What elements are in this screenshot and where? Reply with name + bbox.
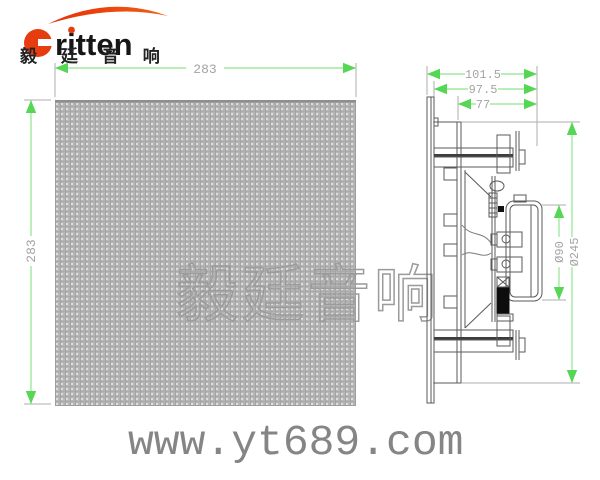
cad-linework: 283 283 101.5 97.5 77 Ø90 Ø245 [0, 0, 600, 480]
depth-inner-dimension: 77 [476, 98, 490, 112]
depth-body-dimension: 97.5 [469, 83, 498, 97]
magnet-assembly [506, 195, 542, 301]
top-mounting-clamp [434, 131, 525, 173]
side-section-view [427, 97, 542, 403]
crossover-parts [497, 277, 513, 321]
magnet-diameter-dimension: Ø90 [553, 241, 567, 263]
front-height-dimension: 283 [24, 239, 39, 262]
front-view-dimensions [31, 68, 356, 404]
website-text: www.yt689.com [128, 419, 463, 466]
cutout-diameter-dimension: Ø245 [568, 238, 582, 267]
depth-overall-dimension: 101.5 [465, 68, 501, 82]
technical-drawing-sheet: ritten 毅 廷 音 响 毅廷音响 [0, 0, 600, 480]
front-width-dimension: 283 [193, 62, 216, 77]
bottom-mounting-clamp [434, 316, 525, 360]
side-view-dimensions [427, 74, 572, 383]
